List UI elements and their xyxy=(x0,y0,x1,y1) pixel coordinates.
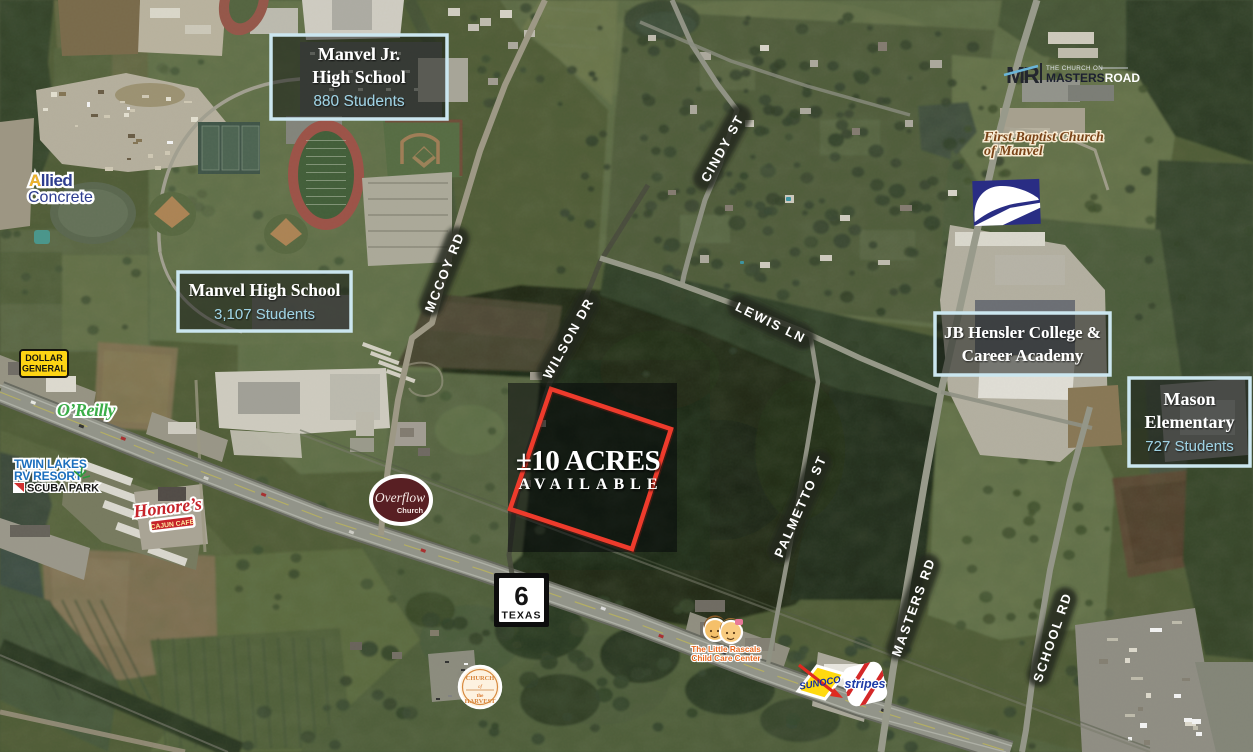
svg-text:Manvel High School: Manvel High School xyxy=(189,280,341,300)
svg-text:SCUBA PARK: SCUBA PARK xyxy=(27,483,99,495)
svg-text:Child Care Center: Child Care Center xyxy=(691,654,761,663)
svg-text:stripes: stripes xyxy=(845,677,886,691)
svg-text:TEXAS: TEXAS xyxy=(501,610,541,622)
svg-text:Mason: Mason xyxy=(1163,389,1215,409)
svg-text:±10 ACRES: ±10 ACRES xyxy=(516,445,660,477)
svg-text:DOLLAR: DOLLAR xyxy=(25,353,63,363)
svg-text:AVAILABLE: AVAILABLE xyxy=(518,476,663,493)
svg-text:Career Academy: Career Academy xyxy=(962,346,1084,365)
svg-text:6: 6 xyxy=(514,581,528,611)
svg-text:First Baptist Church: First Baptist Church xyxy=(983,130,1104,145)
svg-text:727 Students: 727 Students xyxy=(1145,438,1233,455)
svg-text:GENERAL: GENERAL xyxy=(22,364,67,374)
svg-text:of Manvel: of Manvel xyxy=(984,144,1043,159)
svg-text:Manvel Jr.: Manvel Jr. xyxy=(318,44,400,64)
svg-text:3,107 Students: 3,107 Students xyxy=(214,306,315,323)
svg-text:High School: High School xyxy=(312,67,406,87)
svg-text:Overflow: Overflow xyxy=(375,490,425,505)
svg-text:Church: Church xyxy=(397,506,424,515)
svg-text:JB Hensler College &: JB Hensler College & xyxy=(944,323,1101,342)
svg-text:Concrete: Concrete xyxy=(28,189,93,206)
svg-text:A: A xyxy=(29,171,41,190)
svg-text:Elementary: Elementary xyxy=(1145,412,1235,432)
svg-text:RV RESORT: RV RESORT xyxy=(14,469,83,483)
svg-text:The Little Rascals: The Little Rascals xyxy=(691,645,761,654)
svg-text:880 Students: 880 Students xyxy=(313,93,405,110)
svg-text:MASTERSROAD: MASTERSROAD xyxy=(1046,71,1140,85)
svg-text:of: of xyxy=(478,685,483,690)
svg-text:HARVEST: HARVEST xyxy=(465,698,496,705)
svg-text:CHURCH: CHURCH xyxy=(466,675,494,682)
svg-text:O’Reilly: O’Reilly xyxy=(57,400,116,420)
